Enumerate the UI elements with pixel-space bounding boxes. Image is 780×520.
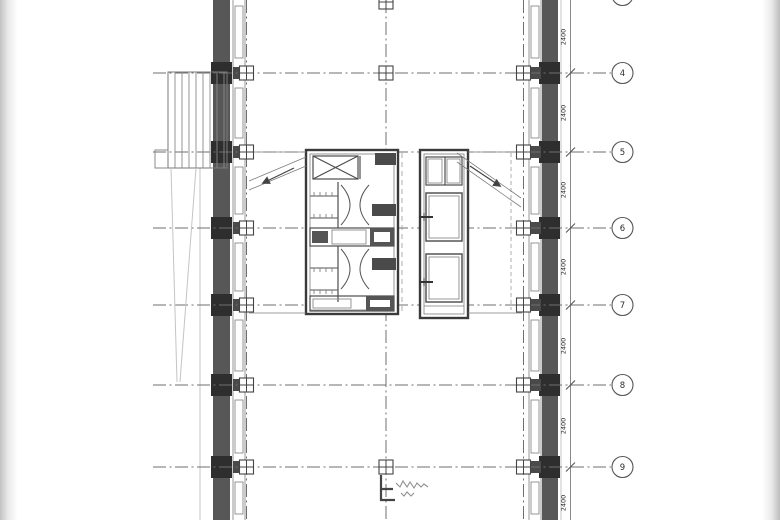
column-marker-square	[379, 66, 393, 80]
door-jamb	[372, 204, 396, 216]
wall-bracket	[381, 475, 395, 500]
window	[235, 400, 243, 453]
egress-ramp-left	[249, 157, 306, 190]
column-marker-square	[240, 298, 254, 312]
ramp-edge-line	[180, 168, 196, 382]
stair-landing-notch	[155, 150, 168, 168]
door-jamb	[375, 153, 396, 165]
grid-bubble: 9	[612, 457, 633, 478]
window	[235, 167, 243, 214]
grid-bubble: 4	[612, 63, 633, 84]
grid-bubble-label: 8	[620, 381, 625, 391]
column-marker-square	[379, 0, 393, 9]
grid-bubbles: 456789	[612, 0, 633, 478]
window	[531, 167, 539, 214]
dimension-string: 2400240024002400240024002400	[560, 0, 576, 520]
column-marker-square	[517, 66, 531, 80]
grid-bubble-label: 5	[620, 148, 625, 158]
column-marker-square	[240, 145, 254, 159]
dimension-value: 2400	[560, 495, 568, 512]
window	[531, 320, 539, 371]
window	[531, 482, 539, 514]
window	[531, 243, 539, 291]
column-marker-square	[517, 378, 531, 392]
stair-treads	[175, 72, 224, 168]
grid-bubble-partial	[612, 0, 633, 6]
column-marker-square	[240, 378, 254, 392]
grid-bubble-label: 6	[620, 224, 625, 234]
window	[235, 88, 243, 138]
window	[531, 400, 539, 453]
ramp-edge-line	[171, 168, 177, 382]
column-marker-square	[517, 145, 531, 159]
window	[531, 6, 539, 58]
grid-bubble: 7	[612, 295, 633, 316]
grid-bubble-label: 7	[620, 301, 625, 311]
column-marker-square	[240, 66, 254, 80]
dimension-value: 2400	[560, 182, 568, 199]
grid-bubble: 6	[612, 218, 633, 239]
window	[235, 482, 243, 514]
window	[531, 88, 539, 138]
column-marker-square	[240, 460, 254, 474]
grid-bubble-label: 4	[620, 69, 625, 79]
dimension-value: 2400	[560, 259, 568, 276]
column-marker-square	[517, 221, 531, 235]
dimension-value: 2400	[560, 338, 568, 355]
window	[235, 6, 243, 58]
column-marker-square	[240, 221, 254, 235]
dimension-value: 2400	[560, 29, 568, 46]
bottom-annotation	[381, 475, 428, 500]
grid-bubble-label: 9	[620, 463, 625, 473]
dimension-value: 2400	[560, 105, 568, 122]
drawing-sheet: 2400240024002400240024002400 456789	[0, 0, 780, 520]
annotation-scribble	[396, 481, 428, 488]
window	[235, 243, 243, 291]
window	[235, 320, 243, 371]
grid-bubble: 5	[612, 142, 633, 163]
column-marker-square	[517, 298, 531, 312]
column-marker-square	[379, 460, 393, 474]
grid-bubble: 8	[612, 375, 633, 396]
egress-arrow-icon	[263, 168, 294, 183]
dimension-value: 2400	[560, 418, 568, 435]
column-marker-square	[517, 460, 531, 474]
core-left-block	[306, 150, 398, 314]
door-jamb	[372, 258, 396, 270]
annotation-scribble	[401, 492, 414, 496]
floorplan-canvas: 2400240024002400240024002400 456789	[0, 0, 780, 520]
egress-arrow-icon	[470, 166, 500, 186]
core-outline	[420, 150, 468, 318]
core-right-block	[419, 150, 468, 318]
